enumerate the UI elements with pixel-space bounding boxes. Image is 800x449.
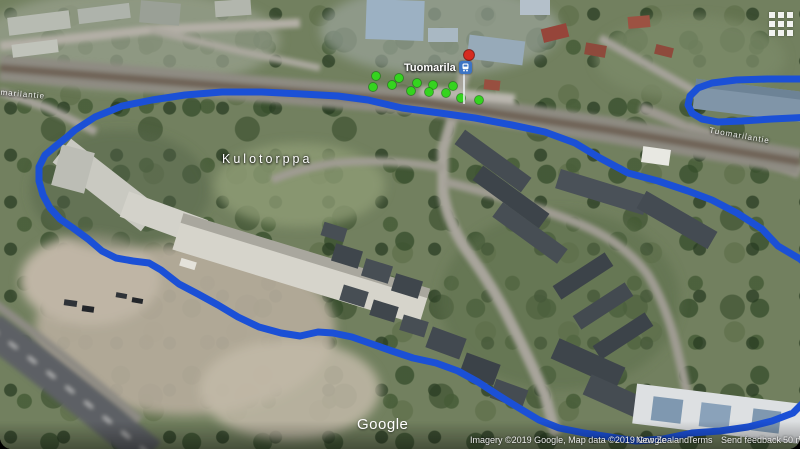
send-feedback-link[interactable]: Send feedback bbox=[721, 435, 781, 445]
photo-markers[interactable] bbox=[369, 50, 484, 105]
green-photo-marker[interactable] bbox=[369, 83, 378, 92]
green-photo-marker[interactable] bbox=[372, 72, 381, 81]
route-loop bbox=[39, 92, 800, 441]
grid-handle-icon bbox=[769, 12, 793, 36]
green-photo-marker[interactable] bbox=[407, 87, 416, 96]
green-photo-marker[interactable] bbox=[413, 79, 422, 88]
train-station-icon[interactable] bbox=[459, 61, 472, 74]
green-photo-marker[interactable] bbox=[388, 81, 397, 90]
station-label: Tuomarila bbox=[404, 62, 456, 74]
route-overlay bbox=[0, 0, 800, 449]
station-marker[interactable]: Tuomarila bbox=[404, 61, 472, 74]
route-capsule bbox=[688, 79, 800, 122]
station-sign-pole bbox=[463, 74, 465, 104]
green-photo-marker[interactable] bbox=[425, 88, 434, 97]
green-photo-marker[interactable] bbox=[442, 89, 451, 98]
google-watermark: Google bbox=[357, 416, 408, 433]
region-label: New Zealand bbox=[636, 435, 689, 445]
terms-link[interactable]: Terms bbox=[688, 435, 713, 445]
green-photo-marker[interactable] bbox=[475, 96, 484, 105]
satellite-map-view[interactable]: Kulotorppa Tuomarilantie Tuomarilantie T… bbox=[0, 0, 800, 449]
green-photo-marker[interactable] bbox=[449, 82, 458, 91]
red-marker[interactable] bbox=[464, 50, 475, 61]
place-label-kulotorppa[interactable]: Kulotorppa bbox=[222, 152, 312, 166]
scale-label: 50 m bbox=[783, 435, 800, 445]
green-photo-marker[interactable] bbox=[395, 74, 404, 83]
